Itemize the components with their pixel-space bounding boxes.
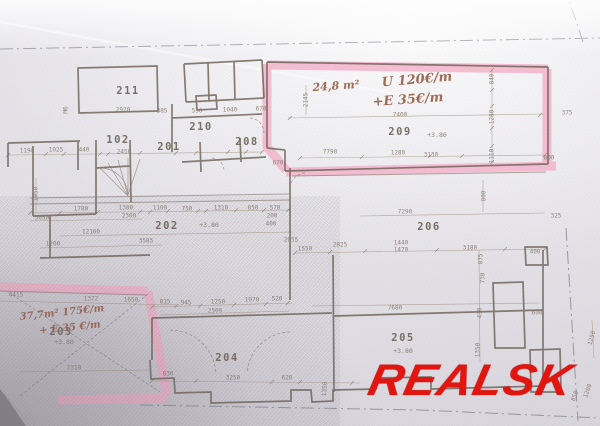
realsk-logo: REALSK <box>364 359 577 403</box>
dimension-label: 325 <box>551 213 562 220</box>
dimension-label: 3180 <box>463 245 477 252</box>
dimension-label: 1190 <box>20 148 34 155</box>
elevation-label: +3.80 <box>199 221 219 229</box>
dimension-label: M6 <box>63 106 70 113</box>
dimension-label: 875 <box>478 254 485 265</box>
dimension-label: 1440 <box>394 240 408 247</box>
dimension-label: 3250 <box>226 375 240 382</box>
dimension-label: 670 <box>273 160 284 167</box>
dimension-label: 850 <box>248 205 259 212</box>
dimension-label: 1040 <box>223 107 237 114</box>
dimension-label: 7680 <box>388 305 402 312</box>
dimension-label: 840 <box>489 74 496 85</box>
dimension-label: 600 <box>532 310 543 317</box>
dimension-label: 1470 <box>394 247 408 254</box>
room-number: 201 <box>157 141 180 153</box>
dimension-label: 1110 <box>489 149 496 163</box>
dimension-label: 2300 <box>122 213 136 220</box>
dimension-label: 2145 <box>303 93 310 107</box>
dimension-label: 1200 <box>582 383 594 399</box>
dimension-label: 2500 <box>208 308 222 315</box>
elevation-label: +3.80 <box>54 338 74 346</box>
dimension-label: 2055 <box>284 237 298 244</box>
floorplan-photo: 29203855301040670M6740021458401280111037… <box>0 0 600 426</box>
dimension-label: 1280 <box>489 110 496 124</box>
dimension-label: 3130 <box>424 152 438 159</box>
dimension-label: 400 <box>266 221 277 228</box>
dimension-label: 815 <box>160 299 171 306</box>
dimension-label: 4415 <box>9 292 23 299</box>
dimension-label: 7790 <box>323 149 337 156</box>
dimension-label: 1250 <box>211 299 225 306</box>
dimension-label: 7290 <box>398 209 412 216</box>
dimension-label: 1100 <box>153 205 167 212</box>
dimension-label: 1550 <box>298 246 312 253</box>
dimension-label: 1310 <box>214 205 228 212</box>
dimension-label: 1025 <box>49 147 63 154</box>
handwritten-annotation: U 120€/m <box>381 69 453 90</box>
room-number: 102 <box>106 134 129 146</box>
dimension-label: 400 <box>530 249 541 256</box>
dimension-label: 1200 <box>46 241 60 248</box>
dimension-label: 440 <box>79 147 90 154</box>
dimension-label: 1350 <box>475 343 482 357</box>
dimension-label: 570 <box>270 205 281 212</box>
dimension-label: 1050 <box>33 187 40 201</box>
room-number: 204 <box>215 352 238 364</box>
dimension-label: 800 <box>481 191 488 202</box>
elevation-label: +3.80 <box>393 347 413 355</box>
dimension-label: 12160 <box>82 229 100 236</box>
dimension-label: 7400 <box>393 112 407 119</box>
dimension-label: 2450 <box>117 149 131 156</box>
dimension-label: 530 <box>192 108 203 115</box>
dimension-label: 945 <box>181 300 192 307</box>
elevation-label: +3.80 <box>427 131 447 139</box>
dimension-label: 1780 <box>74 206 88 213</box>
dimension-label: 1650 <box>124 297 138 304</box>
handwritten-annotation: 24,8 m² <box>312 78 360 94</box>
dimension-label: 1350 <box>321 381 329 396</box>
room-number: 210 <box>189 121 212 133</box>
room-number: 202 <box>155 220 178 232</box>
dimension-label: 2920 <box>116 107 130 114</box>
dimension-label: 2825 <box>333 242 347 249</box>
dimension-label: 670 <box>256 106 267 113</box>
dimension-label: 830 <box>163 371 174 378</box>
dimension-label: 430 <box>477 308 484 319</box>
dimension-label: 3050 <box>35 215 49 222</box>
room-number: 206 <box>417 221 440 233</box>
dimension-label: 375 <box>562 110 573 117</box>
dimension-label: 7310 <box>67 365 81 372</box>
dimension-label: 1280 <box>391 150 405 157</box>
dimension-label: 620 <box>282 375 293 382</box>
dimension-label: 200 <box>267 213 278 220</box>
dimension-label: 385 <box>157 108 168 115</box>
handwritten-annotation: +E 35€/m <box>372 90 444 110</box>
room-number: 209 <box>388 126 411 138</box>
room-number: 211 <box>116 85 139 97</box>
room-number: 208 <box>235 136 258 148</box>
dimension-label: 1070 <box>245 297 259 304</box>
dimension-label: 850 <box>570 390 580 403</box>
dimension-label: 800 <box>544 155 555 162</box>
dimension-label: 750 <box>182 206 193 213</box>
dimension-label: 3585 <box>139 238 153 245</box>
dimension-label: 1372 <box>84 296 98 303</box>
room-number: 205 <box>391 332 414 344</box>
dimension-label: 730 <box>480 273 487 284</box>
dimension-label: 1250 <box>587 330 598 346</box>
dimension-label: 1300 <box>119 205 133 212</box>
dimension-label: 520 <box>272 296 283 303</box>
